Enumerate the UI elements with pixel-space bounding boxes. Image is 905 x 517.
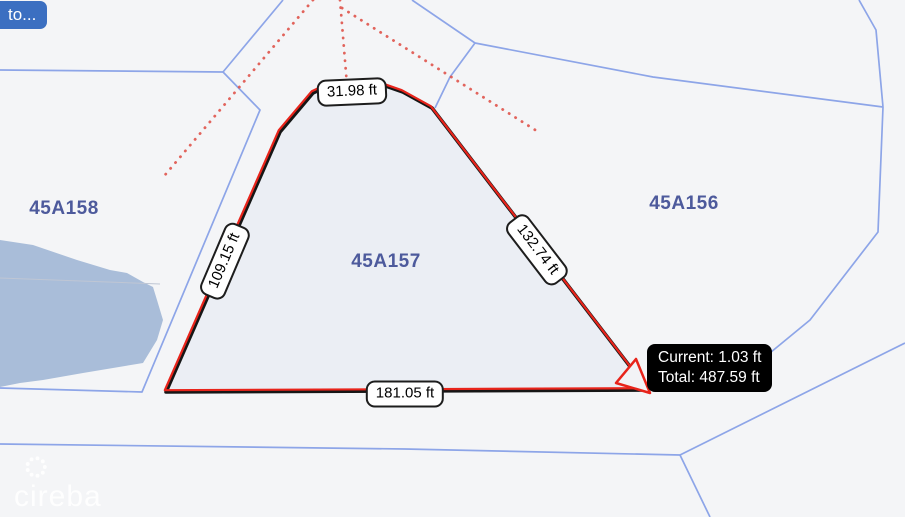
water-body xyxy=(0,240,163,387)
measure-label-top-segment: 31.98 ft xyxy=(316,77,387,107)
parcel-label-45A157: 45A157 xyxy=(351,251,421,273)
map-canvas[interactable] xyxy=(0,0,905,517)
parcel-label-45A156: 45A156 xyxy=(649,193,719,215)
measure-tooltip-total: Total: 487.59 ft xyxy=(658,368,761,388)
measure-label-bottom-segment: 181.05 ft xyxy=(366,381,444,408)
back-button[interactable]: to... xyxy=(0,1,47,29)
cireba-logo-icon xyxy=(19,452,53,482)
watermark-text: cireba xyxy=(14,482,102,512)
measure-tooltip: Current: 1.03 ft Total: 487.59 ft xyxy=(647,344,772,392)
parcel-label-45A158: 45A158 xyxy=(29,198,99,220)
map-viewport[interactable]: 45A158 45A157 45A156 31.98 ft 109.15 ft … xyxy=(0,0,905,517)
measure-tooltip-current: Current: 1.03 ft xyxy=(658,348,761,368)
watermark: cireba xyxy=(14,452,102,512)
